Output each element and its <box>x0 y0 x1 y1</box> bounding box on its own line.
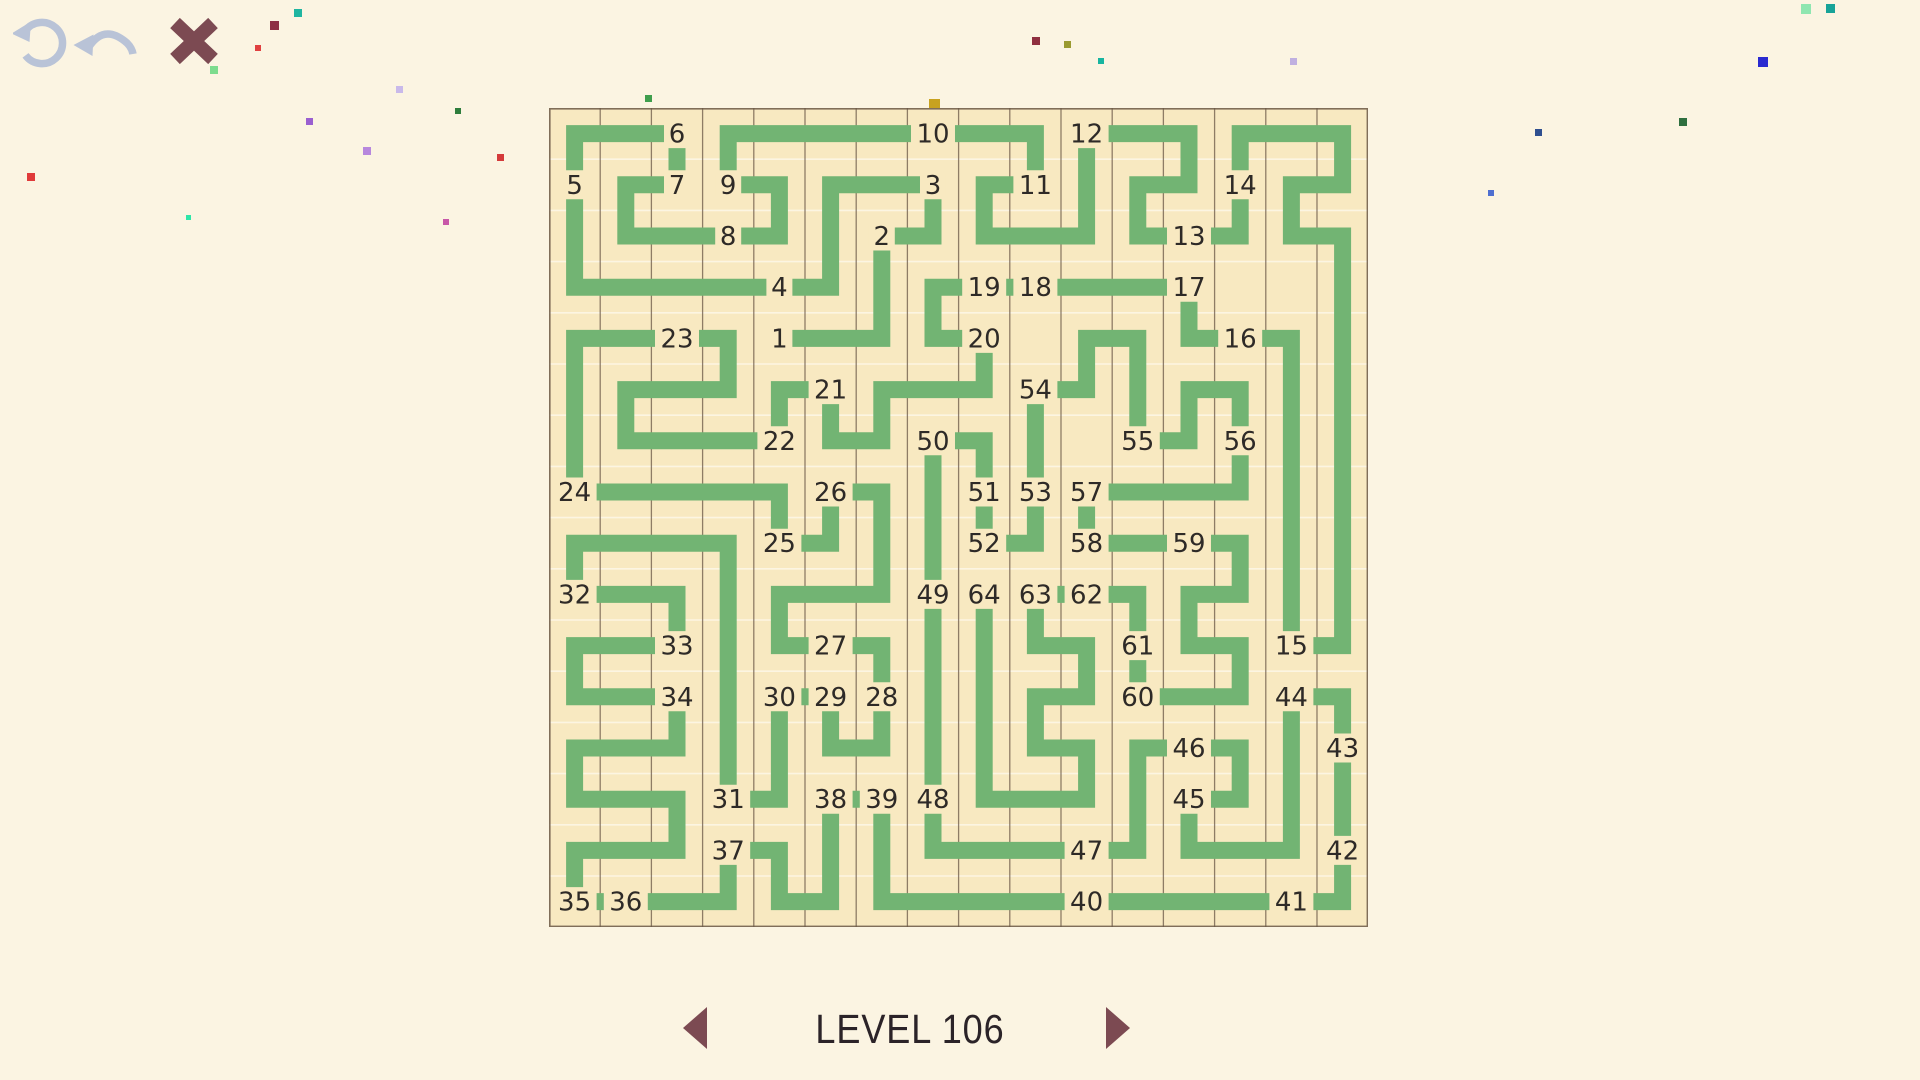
restart-button[interactable] <box>13 13 71 73</box>
waypoint-number: 33 <box>660 632 693 662</box>
waypoint-number: 13 <box>1172 222 1205 252</box>
confetti-dot <box>363 147 371 155</box>
waypoint-number: 56 <box>1224 427 1257 457</box>
confetti-dot <box>306 118 313 125</box>
waypoint-number: 27 <box>814 632 847 662</box>
waypoint-number: 37 <box>712 836 745 866</box>
waypoint-number: 35 <box>558 888 591 918</box>
waypoint-number: 49 <box>916 580 949 610</box>
maze-board[interactable]: 1234567891011121314151617181920212223242… <box>549 108 1368 927</box>
waypoint-number: 46 <box>1172 734 1205 764</box>
waypoint-number: 24 <box>558 478 591 508</box>
confetti-dot <box>27 173 35 181</box>
waypoint-number: 20 <box>968 324 1001 354</box>
waypoint-number: 8 <box>720 222 737 252</box>
confetti-dot <box>1679 118 1687 126</box>
waypoint-number: 40 <box>1070 888 1103 918</box>
waypoint-number: 28 <box>865 683 898 713</box>
waypoint-number: 25 <box>763 529 796 559</box>
waypoint-number: 61 <box>1121 632 1154 662</box>
confetti-dot <box>1290 58 1297 65</box>
waypoint-number: 64 <box>968 580 1001 610</box>
waypoint-number: 60 <box>1121 683 1154 713</box>
waypoint-number: 38 <box>814 785 847 815</box>
waypoint-number: 31 <box>712 785 745 815</box>
waypoint-number: 19 <box>968 273 1001 303</box>
waypoint-number: 44 <box>1275 683 1308 713</box>
level-label: LEVEL 106 <box>778 1005 1042 1055</box>
waypoint-number: 45 <box>1172 785 1205 815</box>
confetti-dot <box>294 9 302 17</box>
close-button[interactable] <box>168 14 220 68</box>
waypoint-number: 3 <box>925 171 942 201</box>
undo-button[interactable] <box>73 20 139 68</box>
waypoint-number: 63 <box>1019 580 1052 610</box>
waypoint-number: 55 <box>1121 427 1154 457</box>
game-screen: 1234567891011121314151617181920212223242… <box>0 0 1920 1080</box>
confetti-dot <box>1758 57 1768 67</box>
waypoint-number: 36 <box>609 888 642 918</box>
waypoint-number: 11 <box>1019 171 1052 201</box>
confetti-dot <box>1032 37 1040 45</box>
waypoint-number: 4 <box>771 273 788 303</box>
confetti-dot <box>270 21 279 30</box>
waypoint-number: 59 <box>1172 529 1205 559</box>
waypoint-number: 57 <box>1070 478 1103 508</box>
waypoint-number: 7 <box>669 171 686 201</box>
waypoint-number: 14 <box>1224 171 1257 201</box>
waypoint-number: 42 <box>1326 836 1359 866</box>
waypoint-number: 10 <box>916 120 949 150</box>
toolbar <box>0 0 240 90</box>
waypoint-number: 21 <box>814 376 847 406</box>
waypoint-number: 5 <box>566 171 583 201</box>
waypoint-number: 26 <box>814 478 847 508</box>
waypoint-number: 1 <box>771 324 788 354</box>
confetti-dot <box>1488 190 1494 196</box>
waypoint-number: 17 <box>1172 273 1205 303</box>
waypoint-number: 50 <box>916 427 949 457</box>
restart-icon <box>13 13 71 73</box>
confetti-dot <box>1826 4 1835 13</box>
waypoint-number: 54 <box>1019 376 1052 406</box>
next-level-button[interactable] <box>1106 1007 1130 1049</box>
prev-level-button[interactable] <box>683 1007 707 1049</box>
confetti-dot <box>443 219 449 225</box>
waypoint-number: 51 <box>968 478 1001 508</box>
waypoint-number: 47 <box>1070 836 1103 866</box>
waypoint-number: 6 <box>669 120 686 150</box>
confetti-dot <box>396 86 403 93</box>
waypoint-number: 23 <box>660 324 693 354</box>
confetti-dot <box>645 95 652 102</box>
waypoint-number: 2 <box>874 222 891 252</box>
waypoint-number: 12 <box>1070 120 1103 150</box>
waypoint-number: 15 <box>1275 632 1308 662</box>
waypoint-number: 43 <box>1326 734 1359 764</box>
waypoint-number: 16 <box>1224 324 1257 354</box>
waypoint-number: 30 <box>763 683 796 713</box>
confetti-dot <box>1064 41 1071 48</box>
confetti-dot <box>1098 58 1104 64</box>
waypoint-number: 48 <box>916 785 949 815</box>
waypoint-number: 52 <box>968 529 1001 559</box>
confetti-dot <box>455 108 461 114</box>
waypoint-number: 32 <box>558 580 591 610</box>
confetti-dot <box>255 45 261 51</box>
confetti-dot <box>1535 129 1542 136</box>
waypoint-number: 58 <box>1070 529 1103 559</box>
confetti-dot <box>1801 4 1811 14</box>
confetti-dot <box>497 154 504 161</box>
waypoint-number: 53 <box>1019 478 1052 508</box>
waypoint-number: 22 <box>763 427 796 457</box>
waypoint-number: 39 <box>865 785 898 815</box>
waypoint-number: 34 <box>660 683 693 713</box>
waypoint-number: 9 <box>720 171 737 201</box>
waypoint-number: 62 <box>1070 580 1103 610</box>
close-icon <box>168 14 220 68</box>
waypoint-number: 18 <box>1019 273 1052 303</box>
level-nav: LEVEL 106 <box>660 995 1160 1065</box>
waypoint-number: 41 <box>1275 888 1308 918</box>
waypoint-number: 29 <box>814 683 847 713</box>
undo-icon <box>73 20 139 68</box>
confetti-dot <box>186 215 191 220</box>
